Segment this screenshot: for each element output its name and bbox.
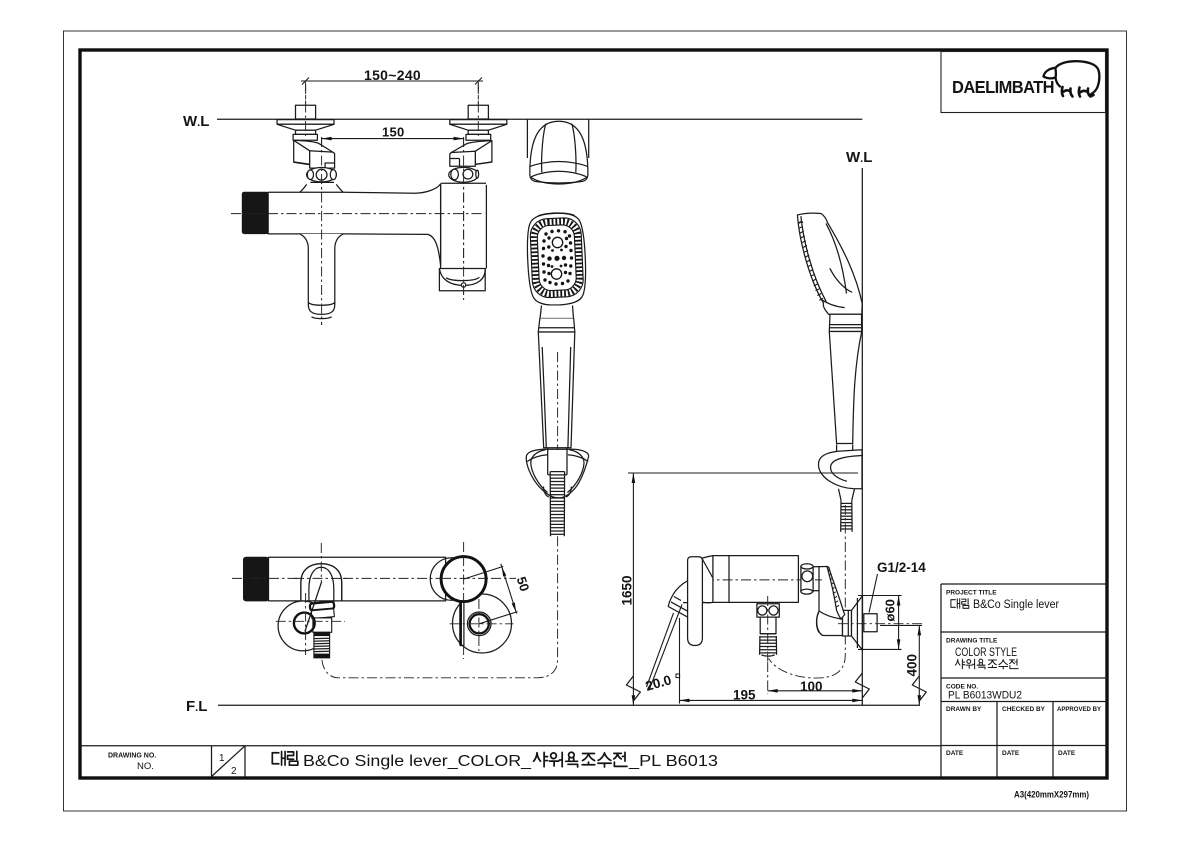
svg-text:W.L: W.L (183, 113, 209, 130)
svg-text:DATE: DATE (946, 750, 964, 757)
svg-text:PROJECT TITLE: PROJECT TITLE (946, 590, 997, 597)
svg-text:B&Co Single lever: B&Co Single lever (973, 599, 1059, 611)
svg-text:DAELIMBATH: DAELIMBATH (952, 77, 1054, 97)
svg-text:PL B6013WDU2: PL B6013WDU2 (948, 690, 1022, 702)
svg-text:DATE: DATE (1002, 750, 1020, 757)
svg-text:COLOR STYLE: COLOR STYLE (955, 647, 1017, 659)
svg-text:W.L: W.L (846, 149, 872, 166)
svg-text:DRAWING TITLE: DRAWING TITLE (946, 638, 998, 645)
svg-text:A3(420mmX297mm): A3(420mmX297mm) (1014, 790, 1089, 800)
svg-text:DRAWN BY: DRAWN BY (946, 706, 982, 713)
svg-text:B&Co Single lever_COLOR_: B&Co Single lever_COLOR_ (303, 753, 531, 770)
svg-text:1: 1 (219, 753, 225, 764)
svg-text:APPROVED BY: APPROVED BY (1057, 706, 1102, 713)
svg-text:CHECKED BY: CHECKED BY (1002, 706, 1046, 713)
svg-text:2: 2 (231, 766, 237, 777)
svg-text:NO.: NO. (137, 761, 154, 772)
svg-text:150: 150 (382, 125, 405, 140)
svg-text:ø60: ø60 (883, 599, 898, 621)
svg-text:DATE: DATE (1058, 750, 1076, 757)
svg-text:400: 400 (905, 654, 920, 677)
svg-text:DRAWING NO.: DRAWING NO. (108, 753, 156, 760)
svg-text:100: 100 (800, 679, 823, 694)
svg-text:1650: 1650 (620, 575, 635, 605)
svg-text:_PL B6013: _PL B6013 (628, 753, 718, 770)
svg-text:G1/2-14: G1/2-14 (877, 560, 926, 575)
